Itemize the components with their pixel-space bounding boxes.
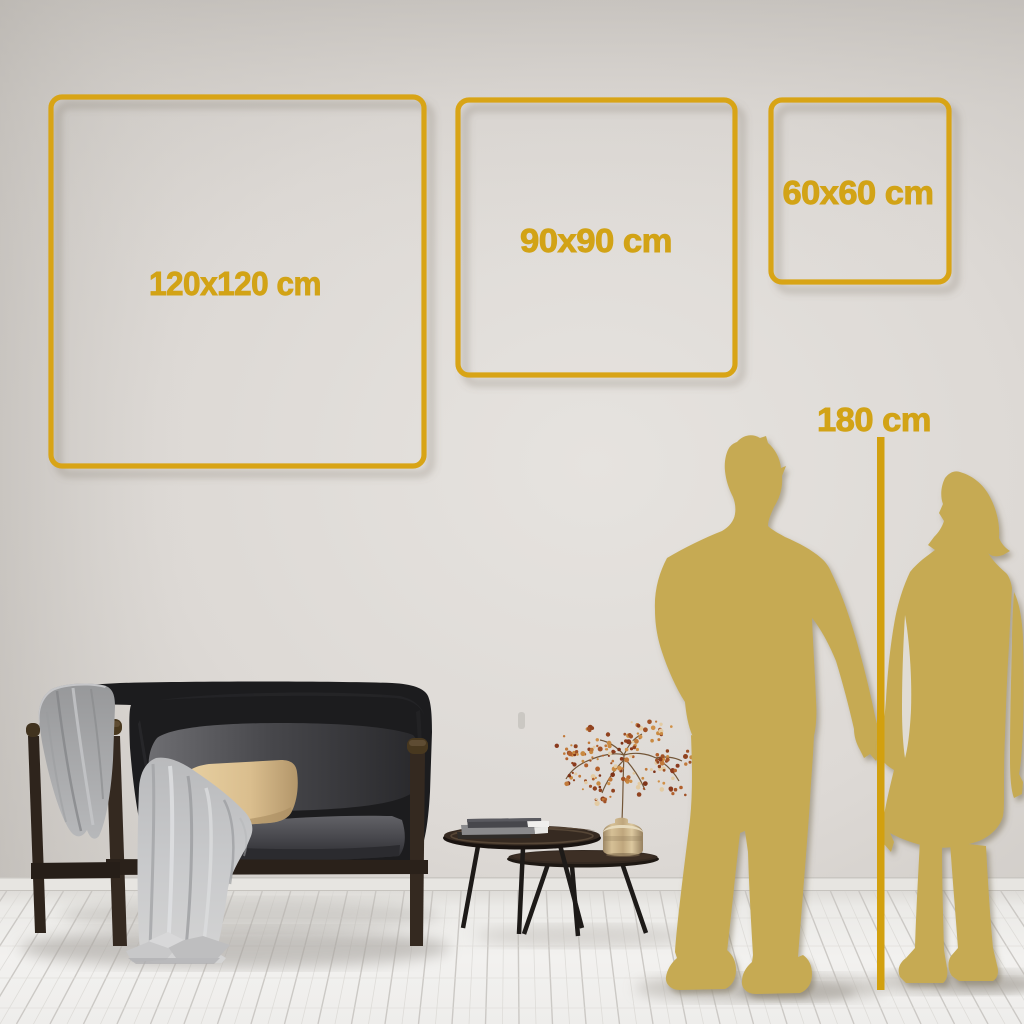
svg-text:120x120 cm: 120x120 cm — [149, 265, 321, 302]
svg-text:90x90 cm: 90x90 cm — [520, 222, 672, 259]
svg-text:180 cm: 180 cm — [817, 401, 931, 438]
svg-text:60x60 cm: 60x60 cm — [783, 174, 934, 211]
